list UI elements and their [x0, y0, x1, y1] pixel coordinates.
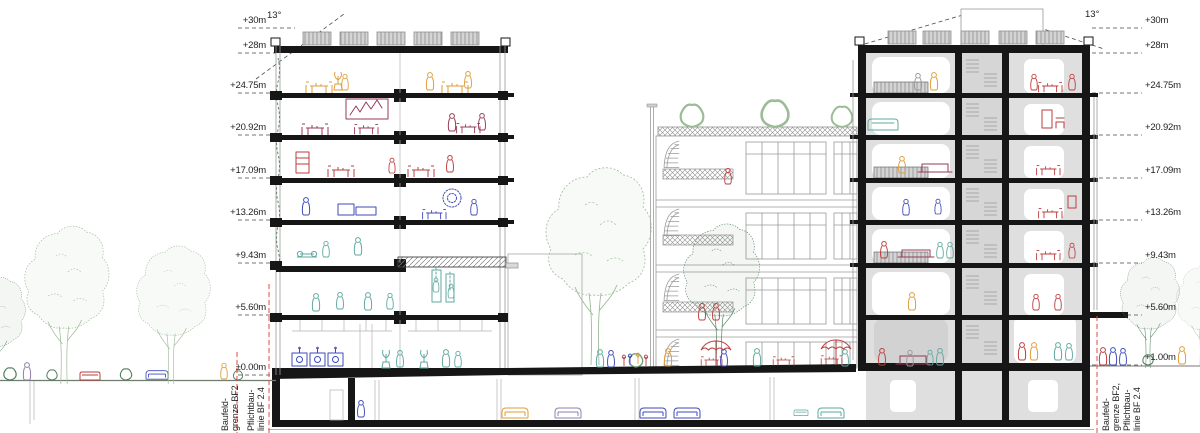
balcony-rail — [663, 169, 733, 179]
level-lines-left — [238, 14, 344, 375]
level-label-left-28: +28m — [206, 41, 266, 51]
roof-angle-right: 13° — [1085, 9, 1099, 20]
level-label-right-1326: +13.26m — [1145, 208, 1181, 218]
level-label-left-560: +5.60m — [206, 303, 266, 313]
trees-left — [0, 226, 210, 384]
level-label-right-2092: +20.92m — [1145, 123, 1181, 133]
floor-sketch-gym — [297, 238, 362, 257]
left-building-section — [270, 32, 518, 375]
facade-vine — [277, 58, 280, 272]
boundary-label-right-2: grenze BF2, — [1111, 383, 1121, 431]
level-label-right-1709: +17.09m — [1145, 166, 1181, 176]
level-label-left-1709: +17.09m — [206, 166, 266, 176]
roof-parapet — [658, 127, 857, 136]
floor-sketch-red — [296, 152, 453, 177]
level-label-left-000: ±0.00m — [206, 363, 266, 373]
floor-sketch-orange — [306, 71, 471, 93]
boundary-label-left-b2: linie BF 2.4 — [256, 387, 266, 431]
floor-sketch-blue — [302, 189, 477, 219]
rooftop-hvac-units — [303, 32, 479, 45]
entry-canopy — [1090, 312, 1128, 318]
level-label-left-2092: +20.92m — [206, 123, 266, 133]
garage-cars — [358, 400, 844, 418]
level-label-right-943: +9.43m — [1145, 251, 1176, 261]
level-label-right-28: +28m — [1145, 41, 1168, 51]
right-building-section — [850, 9, 1128, 425]
floor-sketch-ground — [292, 320, 492, 368]
level-label-right-100: +1.00m — [1145, 353, 1176, 363]
level-label-left-943: +9.43m — [206, 251, 266, 261]
basement-door — [330, 390, 343, 420]
section-drawing-canvas: 13° 13° +30m +28m +24.75m +20.92m +17.09… — [0, 0, 1200, 433]
mezzanine-walkway — [398, 257, 506, 267]
rooftop-hvac-units-right — [888, 31, 1064, 44]
floor-sketch-darkred — [302, 99, 485, 135]
boundary-label-left-a2: grenze BF2 — [230, 385, 240, 431]
boundary-label-right-3: Pflichtbau- — [1122, 390, 1132, 431]
boundary-label-right-1: Baufeld- — [1101, 398, 1111, 431]
level-label-right-30: +30m — [1145, 16, 1168, 26]
level-label-left-1326: +13.26m — [206, 208, 266, 218]
roof-angle-left: 13° — [267, 10, 281, 21]
level-label-right-2475: +24.75m — [1145, 81, 1181, 91]
boundary-label-right-4: linie BF 2.4 — [1132, 387, 1142, 431]
level-label-left-30: +30m — [206, 16, 266, 26]
level-label-right-560: +5.60m — [1145, 303, 1176, 313]
boundary-label-left-a1: Baufeld- — [220, 398, 230, 431]
floor-sketch-climbing — [312, 268, 454, 311]
boundary-label-left-b1: Pflichtbau- — [246, 390, 256, 431]
section-drawing — [0, 0, 1200, 433]
level-label-left-2475: +24.75m — [206, 81, 266, 91]
